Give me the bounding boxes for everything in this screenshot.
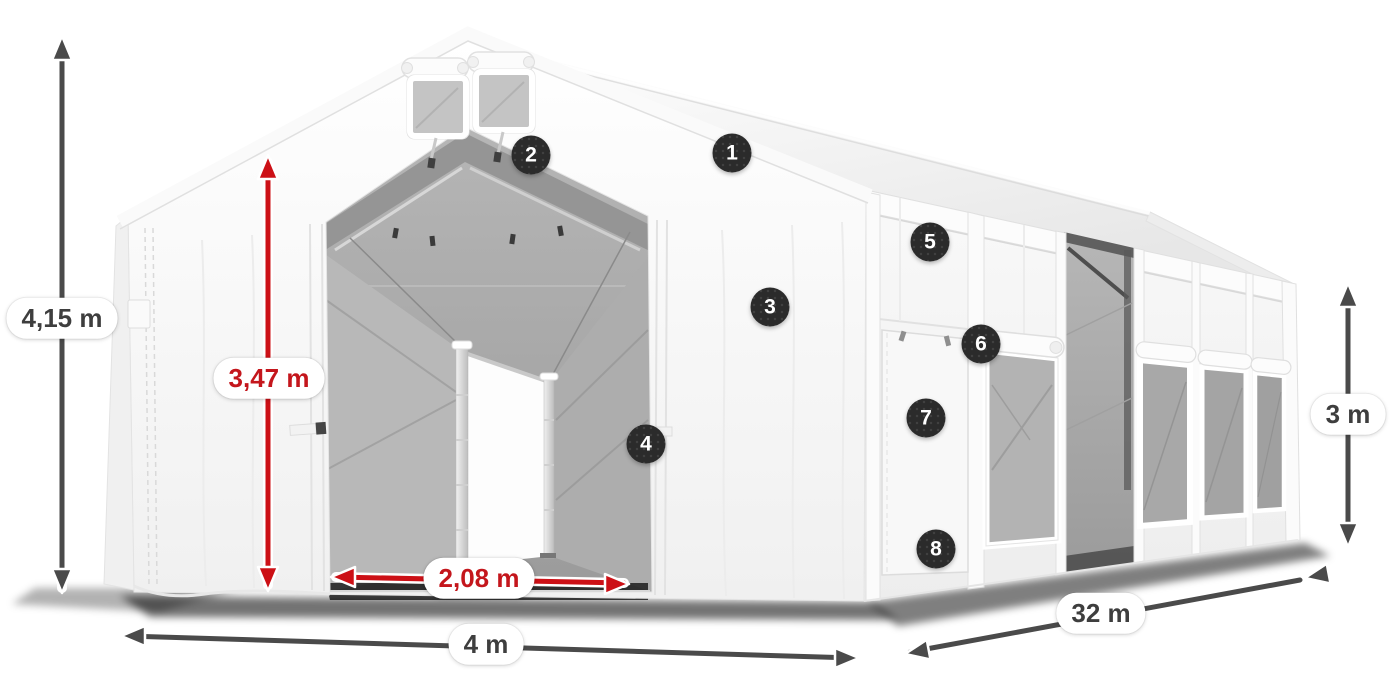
side-window-3 <box>1197 349 1252 518</box>
dimension-label-length: 32 m <box>1056 593 1145 634</box>
side-window-2 <box>1135 341 1196 526</box>
callout-badge-7: 7 <box>907 399 946 438</box>
dimension-label-entrance-height: 3,47 m <box>214 358 325 399</box>
callout-badge-8: 8 <box>917 530 956 569</box>
dimension-label-total-height: 4,15 m <box>7 298 118 339</box>
inner-doorway-opening <box>460 350 550 566</box>
callout-badge-3: 3 <box>751 288 790 327</box>
callout-badge-6: 6 <box>962 325 1001 364</box>
tent-dimension-diagram: 4,15 m 3,47 m 2,08 m 4 m 32 m 3 m 1 2 3 … <box>0 0 1400 700</box>
dimension-label-side-height: 3 m <box>1311 394 1386 435</box>
open-side-bay <box>1064 232 1134 573</box>
side-window-4 <box>1250 357 1291 511</box>
callout-badge-5: 5 <box>911 223 950 262</box>
tent-illustration <box>0 0 1400 700</box>
side-window-1 <box>981 330 1065 546</box>
dimension-label-width: 4 m <box>449 624 524 665</box>
callout-badge-4: 4 <box>627 425 666 464</box>
callout-badge-2: 2 <box>512 136 551 175</box>
callout-badge-1: 1 <box>713 134 752 173</box>
dimension-label-entrance-width: 2,08 m <box>424 558 535 599</box>
